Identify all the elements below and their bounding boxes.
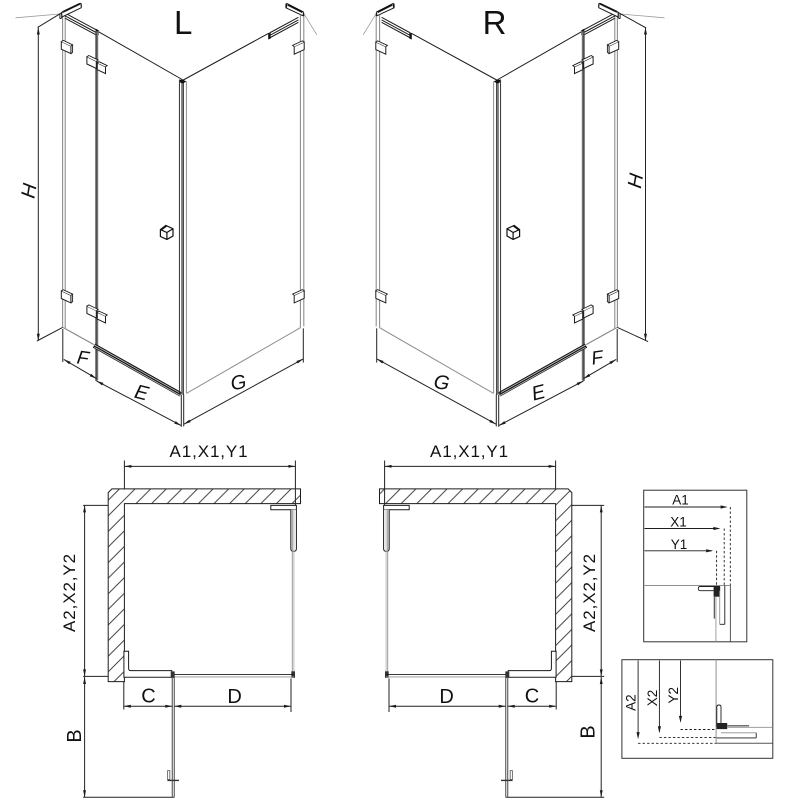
svg-text:R: R (483, 4, 507, 41)
svg-text:X1: X1 (670, 514, 687, 529)
svg-text:B: B (64, 729, 86, 742)
svg-text:Y2: Y2 (666, 687, 681, 704)
svg-text:D: D (439, 686, 453, 708)
svg-text:B: B (578, 725, 600, 738)
svg-text:C: C (141, 686, 155, 708)
svg-text:Y1: Y1 (671, 537, 688, 552)
svg-text:A2,X2,Y2: A2,X2,Y2 (60, 553, 79, 632)
svg-text:A2: A2 (623, 694, 638, 711)
svg-text:A1,X1,Y1: A1,X1,Y1 (430, 442, 509, 461)
svg-text:A2,X2,Y2: A2,X2,Y2 (580, 553, 599, 632)
svg-text:L: L (174, 4, 192, 41)
svg-text:D: D (227, 686, 241, 708)
svg-text:X2: X2 (645, 690, 660, 707)
svg-text:C: C (525, 686, 539, 708)
svg-text:A1: A1 (672, 493, 689, 508)
svg-text:A1,X1,Y1: A1,X1,Y1 (169, 442, 248, 461)
